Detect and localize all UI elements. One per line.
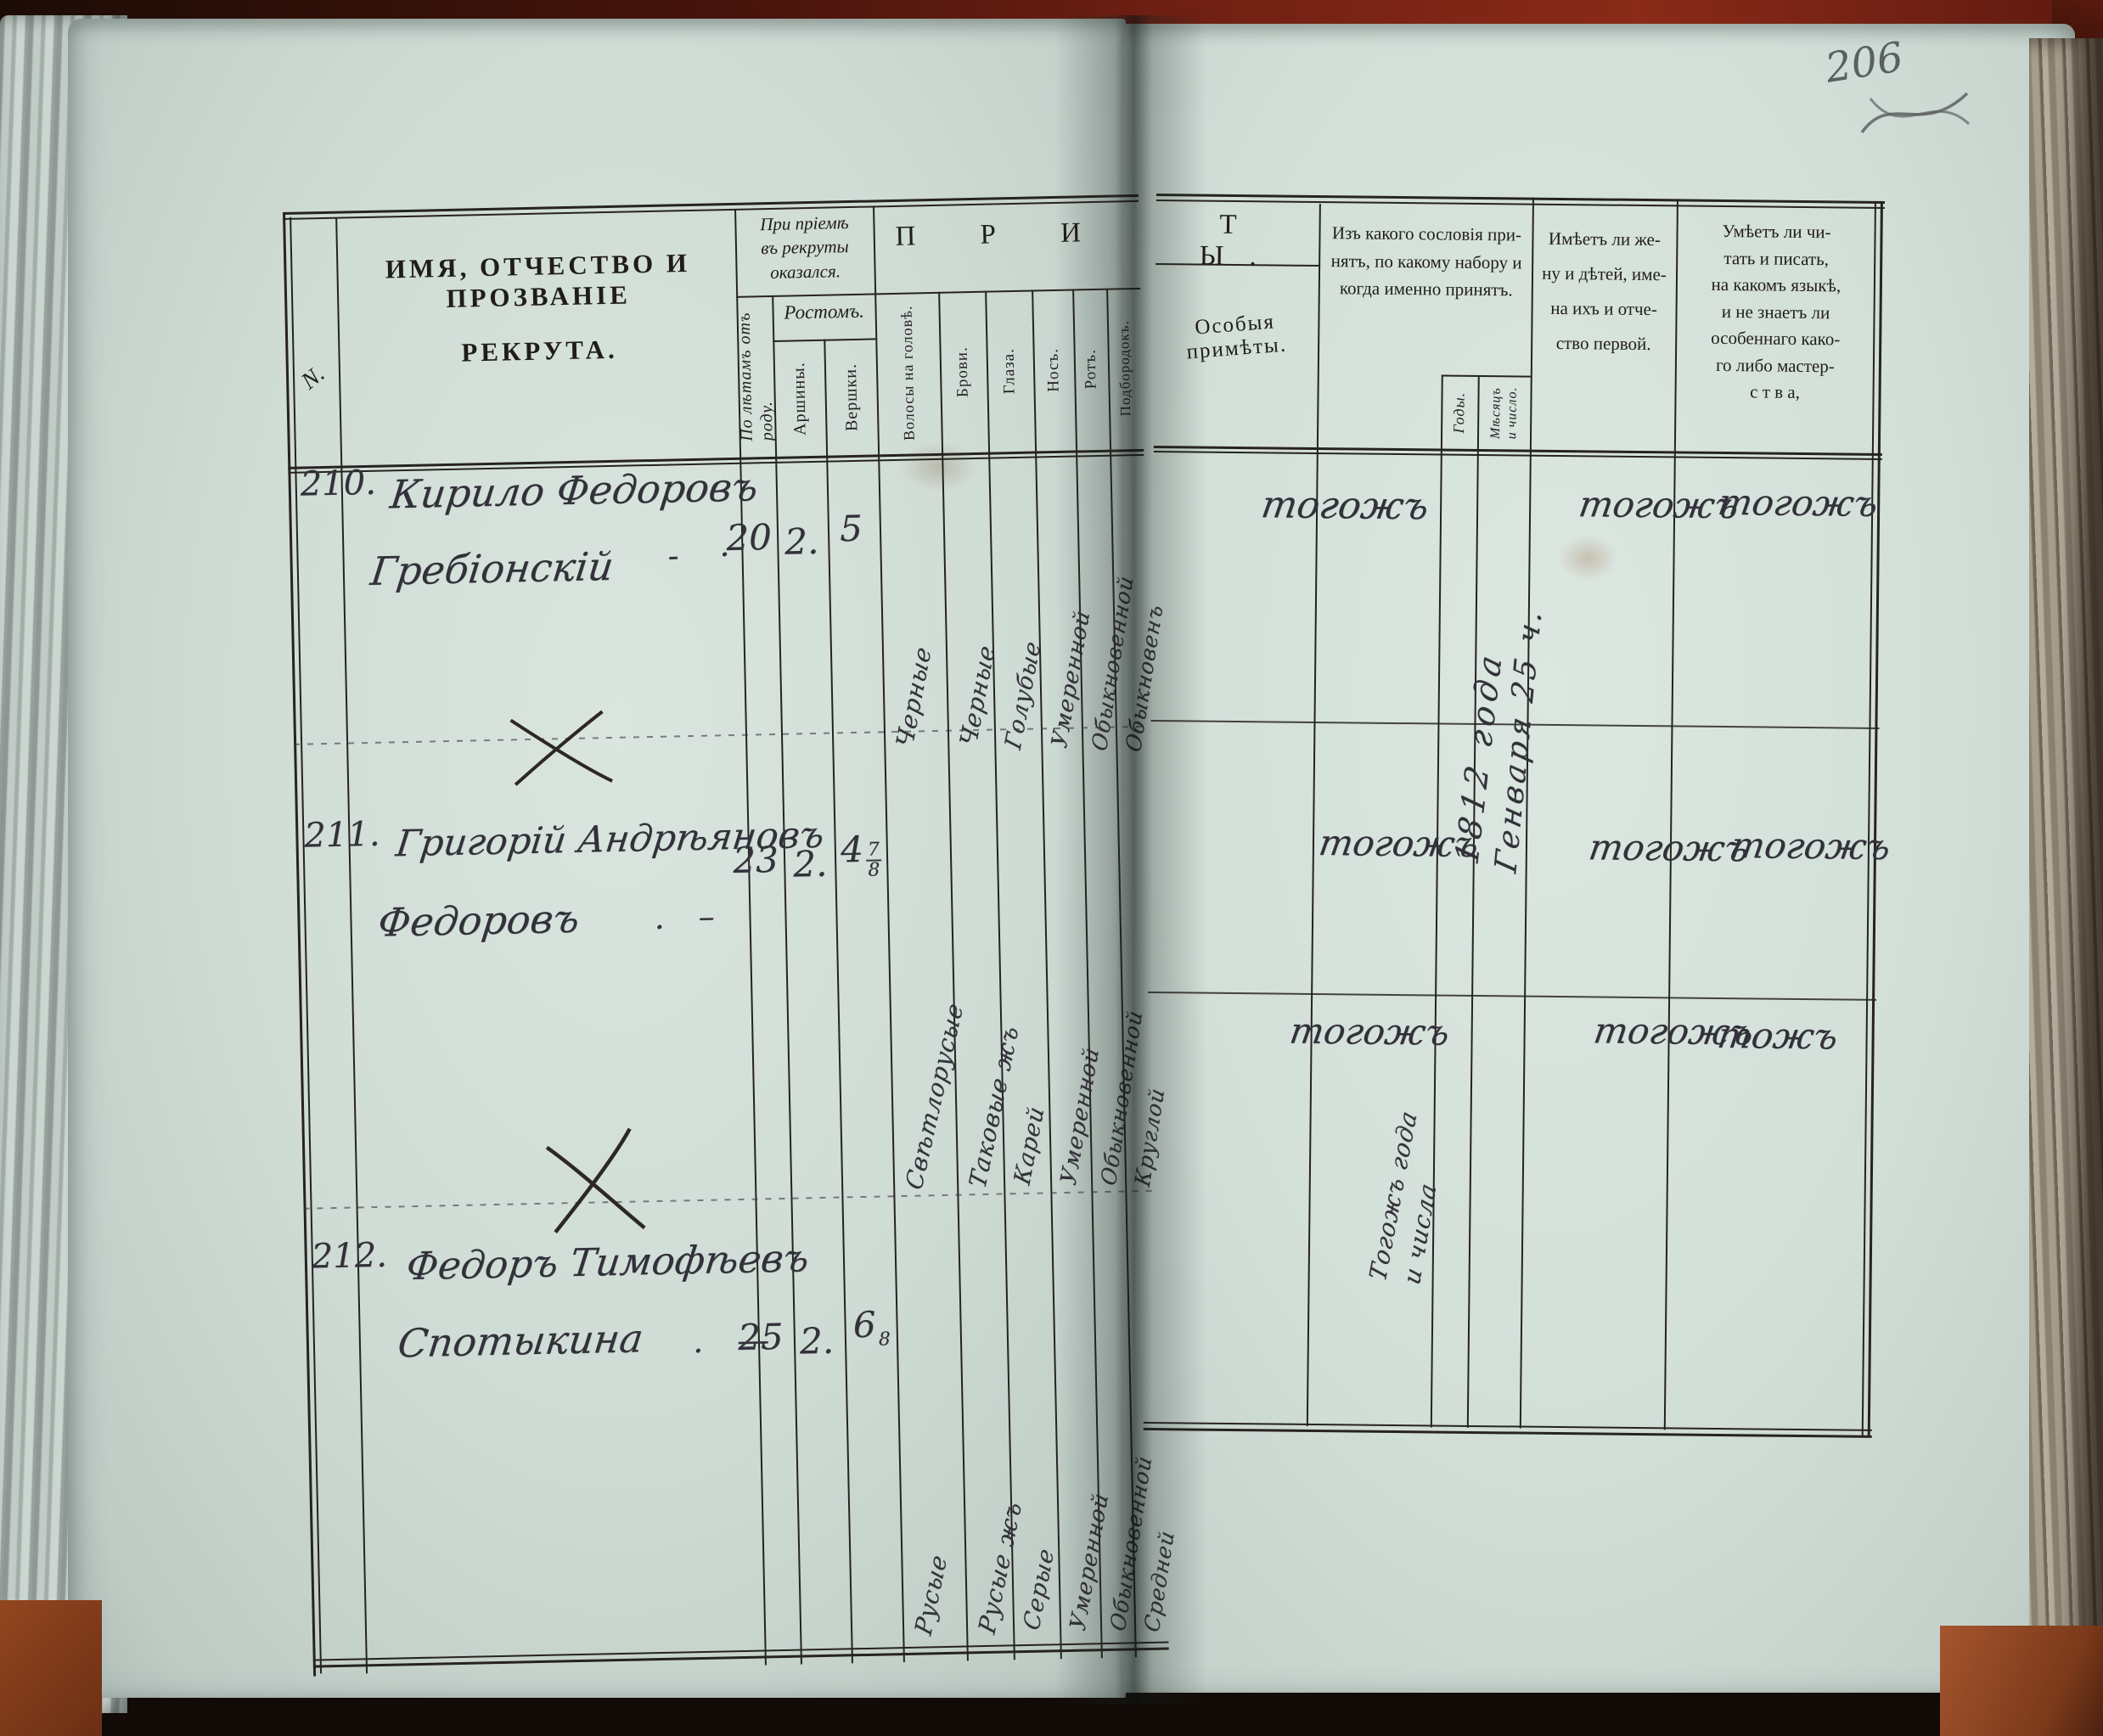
column-header-hair: Волосы на головѣ.: [876, 294, 940, 452]
cell-estate: тогожъ: [1287, 1010, 1453, 1053]
table-surface-bottom-left: [0, 1600, 102, 1736]
cell-eyes: Голубые: [1000, 638, 1046, 752]
column-header-vershoks: Вершки.: [825, 340, 876, 453]
cell-hair: Русые: [909, 1551, 953, 1638]
recruit-name-line1: Федоръ Тимофѣевъ: [404, 1235, 812, 1289]
cell-arshins: 2.: [793, 1320, 840, 1362]
cell-family: тогожъ: [1586, 826, 1752, 869]
row-number: 212.: [311, 1236, 387, 1277]
column-header-years: Годы.: [1442, 377, 1477, 448]
column-header-arshins: Аршины.: [774, 342, 824, 455]
cell-vershoks: 68: [847, 1303, 896, 1350]
column-header-acceptance: При пріемѣ въ рекруты оказался.: [735, 210, 874, 284]
cross-mark: [505, 708, 617, 789]
recruit-name-line2: Гребіонскій: [368, 543, 616, 594]
column-header-height: Ростомъ.: [773, 300, 874, 323]
column-header-age: По лѣтамъ отъ роду.: [736, 297, 775, 456]
cell-brows: Русые жъ: [973, 1497, 1027, 1637]
cell-estate: тогожъ: [1258, 483, 1431, 528]
register-table-left: N. ИМЯ, ОТЧЕСТВО И ПРОЗВАНІЕ РЕКРУТА. Пр…: [283, 194, 1169, 1677]
recruit-name-line1: Кирило Федоровъ: [388, 463, 761, 517]
cell-brows: Черные: [954, 642, 1000, 750]
cell-literacy: тогожъ: [1716, 481, 1881, 525]
recruit-name-line2: Федоровъ: [375, 896, 582, 946]
book-scan: 206 N. ИМЯ, ОТЧЕСТВО И ПРОЗВАНІЕ РЕКРУТА…: [0, 0, 2103, 1736]
right-page-stack-edges: [2029, 38, 2103, 1728]
cell-arshins: 2.: [779, 520, 825, 563]
cell-literacy: тогожъ: [1728, 824, 1893, 868]
cell-eyes: Карей: [1009, 1103, 1049, 1188]
column-header-month-day: Мѣсяцъ и число.: [1479, 377, 1529, 449]
table-surface-bottom-right: [1940, 1626, 2103, 1736]
row-divider: [304, 1190, 1160, 1210]
column-header-family: Имѣетъ ли же- ну и дѣтей, име- на ихъ и …: [1534, 222, 1674, 362]
register-table-right: Т Ы. Особыя примѣты. Изъ какого сословія…: [1144, 194, 1885, 1442]
cell-age: 20: [724, 516, 774, 559]
cell-estate: тогожъ: [1316, 822, 1482, 865]
recruit-name-line2: Спотыкина: [396, 1315, 646, 1366]
column-header-literacy: Умѣетъ ли чи- тать и писать, на какомъ я…: [1678, 217, 1873, 407]
cell-arshins: 2.: [787, 843, 834, 885]
cell-hair: Свѣтлорусые: [900, 999, 969, 1194]
cell-age: 25: [735, 1316, 785, 1358]
pencil-scribble: [1855, 85, 1974, 144]
column-header-number: N.: [288, 353, 340, 402]
column-header-eyes: Глаза.: [987, 292, 1033, 451]
book-gutter-shadow: [1054, 15, 1207, 1705]
cell-eyes: Серые: [1019, 1545, 1060, 1633]
cell-age: 23: [731, 839, 781, 881]
column-header-brows: Брови.: [940, 293, 987, 452]
name-dash: . –: [654, 897, 727, 936]
row-number: 211.: [304, 815, 380, 856]
column-header-name-line1: ИМЯ, ОТЧЕСТВО И ПРОЗВАНІЕ: [341, 247, 734, 317]
row-number: 210.: [300, 463, 376, 504]
column-header-estate: Изъ какого сословія при- нятъ, по какому…: [1324, 219, 1530, 304]
cell-literacy: тожъ: [1715, 1014, 1841, 1057]
cross-mark: [542, 1126, 650, 1235]
cell-vershoks: 478: [835, 828, 886, 880]
column-header-name-line2: РЕКРУТА.: [343, 332, 736, 371]
cell-vershoks: 5: [830, 507, 877, 549]
cell-hair: Черные: [891, 643, 936, 750]
